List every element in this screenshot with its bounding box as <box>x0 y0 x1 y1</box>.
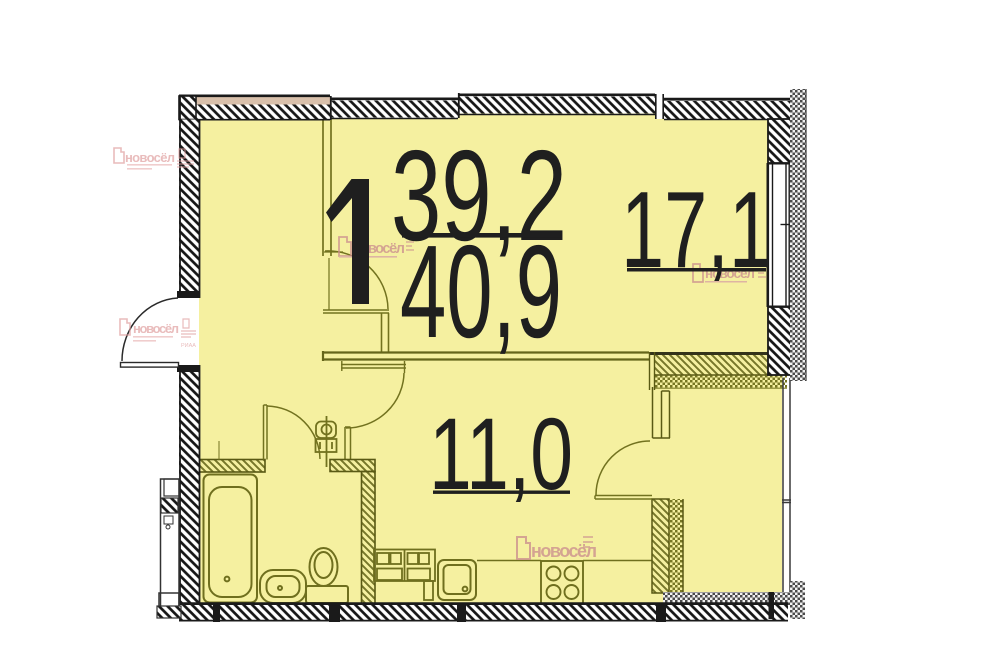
svg-text:17,1: 17,1 <box>621 169 772 291</box>
svg-text:новосёл: новосёл <box>133 321 179 336</box>
svg-text:новосёл: новосёл <box>531 541 597 561</box>
svg-text:РИАА: РИАА <box>181 343 196 349</box>
svg-text:новосёл: новосёл <box>125 150 175 165</box>
svg-text:40,9: 40,9 <box>400 218 562 365</box>
